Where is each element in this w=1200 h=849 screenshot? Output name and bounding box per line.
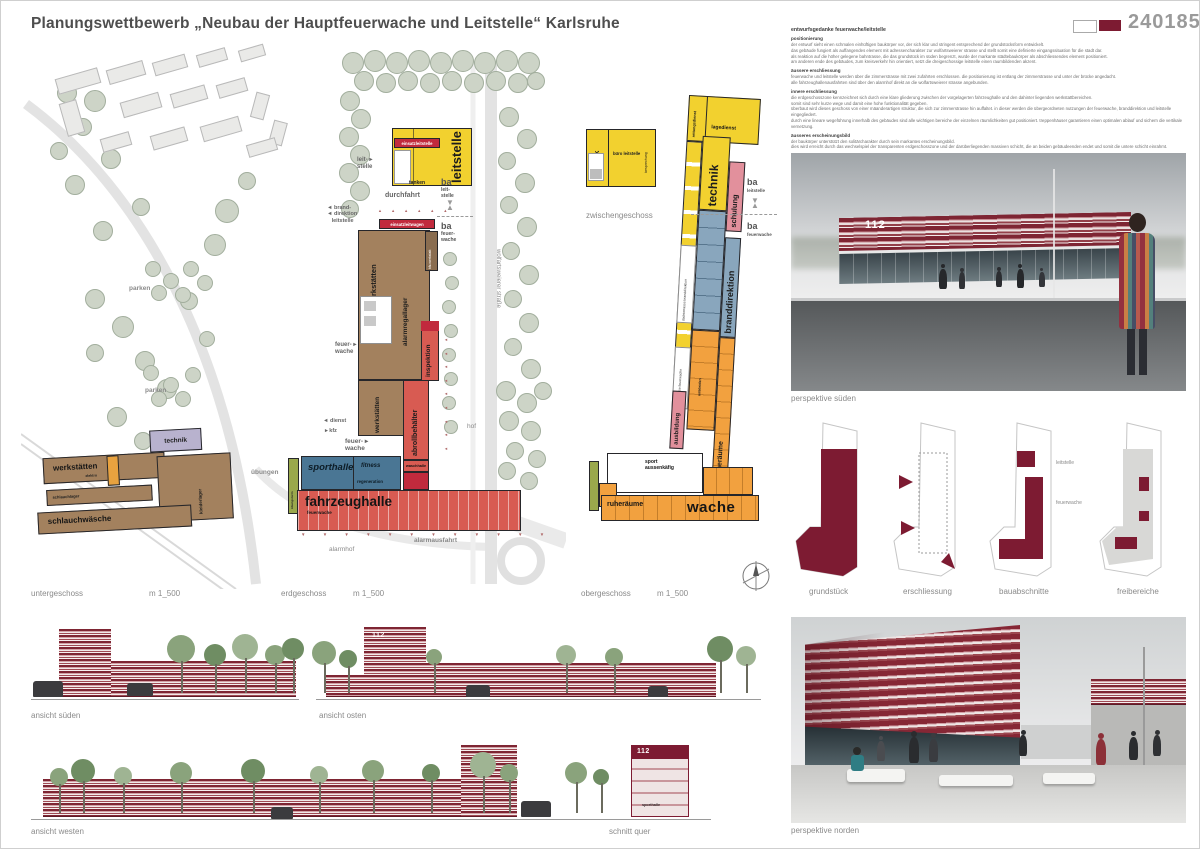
person-silhouette <box>959 272 965 289</box>
sitting-person-head <box>853 747 861 755</box>
tree <box>496 50 518 72</box>
tree-trunk <box>319 782 321 813</box>
tree-trunk <box>431 780 433 813</box>
right-building-band <box>1091 679 1186 705</box>
pedestrian-head <box>1129 213 1146 232</box>
caption-zwischengeschoss: zwischengeschoss <box>586 211 653 220</box>
tree <box>408 50 430 72</box>
tree <box>502 242 520 260</box>
tree <box>442 300 456 314</box>
room-kfz-werkstatt-label: kfz-werkstatt <box>429 250 432 270</box>
person-head <box>1098 733 1104 739</box>
caption-obergeschoss-scale: m 1_500 <box>657 589 688 598</box>
tree <box>71 759 95 783</box>
diagram-grundstueck <box>793 419 873 581</box>
person-head <box>1155 730 1160 735</box>
tree-trunk <box>123 783 125 813</box>
tree <box>362 760 384 782</box>
pedestrian-leg <box>1139 329 1147 375</box>
plan-obergeschoss-bottom: sport aussenkäfig ruheräume wache <box>585 449 763 523</box>
essay-section-innere-erschliessung: innere erschliessung die erdgeschosszone… <box>791 89 1193 130</box>
room-einsatzleitstelle: einsatzleitstelle <box>394 138 440 148</box>
tree <box>518 52 540 74</box>
section-sign-112: 112 <box>637 748 650 755</box>
og-ba-feuerwache: ba <box>747 221 758 231</box>
tree <box>204 234 226 256</box>
tree <box>151 285 167 301</box>
background-building <box>1021 725 1091 759</box>
caption-obergeschoss: obergeschoss <box>581 589 631 598</box>
elevation-ansicht-westen <box>31 743 523 820</box>
label-hof: hof <box>467 423 476 430</box>
building-sign-112: 112 <box>865 219 886 231</box>
tree <box>442 71 462 91</box>
rendering-perspektive-sueden: 112 <box>791 153 1186 391</box>
tree <box>527 72 545 90</box>
tree <box>504 338 522 356</box>
tree-trunk <box>245 658 247 693</box>
tree <box>163 273 179 289</box>
truck-silhouette <box>271 807 293 819</box>
label-kfz: ▸ kfz <box>325 428 337 434</box>
tree <box>215 199 239 223</box>
truck-silhouette <box>127 683 153 696</box>
tree <box>175 287 191 303</box>
room-alarmregallager-label: alarmregallager <box>403 298 410 346</box>
tree <box>376 73 396 93</box>
plaza-pole <box>1143 647 1145 767</box>
diagram-bauabschnitte <box>987 419 1067 581</box>
diagram-annotation-feuerwache: feuerwache <box>1056 501 1082 507</box>
tree <box>498 152 516 170</box>
tree <box>364 50 386 72</box>
tree <box>112 316 134 338</box>
plan-obergeschoss-arm: lagedienst rettungsdienst aufenthalt tec… <box>665 95 763 489</box>
tree <box>84 90 106 112</box>
tree-trunk <box>324 663 326 693</box>
section-sporthalle-label: sporthalle <box>642 803 660 807</box>
zg-besprechung-label: besprechung <box>645 152 649 173</box>
person-silhouette <box>1096 739 1106 765</box>
tree <box>496 381 516 401</box>
label-ba-feuerwache-sub: feuer- wache <box>441 232 456 244</box>
page-title: Planungswettbewerb „Neubau der Hauptfeue… <box>31 15 620 33</box>
rendering-perspektive-norden <box>791 617 1186 823</box>
tree-trunk <box>181 782 183 813</box>
label-parken-1: parken <box>129 285 150 292</box>
essay-section-title: äusseres erscheinungsbild <box>791 133 1193 138</box>
room-werkstaetten2-label: werkstätten <box>375 397 382 433</box>
elevation-ansicht-sueden <box>31 623 299 700</box>
tree <box>143 365 159 381</box>
essay-section-title: äussere erschliessung <box>791 68 1193 73</box>
truck-silhouette <box>521 801 551 817</box>
tree <box>470 752 496 778</box>
alarm-arrows-col: ◄ ◄ ◄ ◄ ◄ ◄ ◄ ◄ ◄ <box>444 333 448 455</box>
tree-trunk <box>720 660 722 693</box>
tree-trunk <box>83 781 85 813</box>
tree <box>339 163 359 183</box>
caption-bauabschnitte: bauabschnitte <box>999 587 1049 596</box>
courtyard-stair1 <box>364 301 376 311</box>
tree <box>351 109 371 129</box>
tree-trunk <box>576 782 578 813</box>
caption-grundstueck: grundstück <box>809 587 848 596</box>
tree <box>199 331 215 347</box>
alarm-arrows-up: ▲ ▲ ▲ ▲ ▲ ▲ <box>378 209 451 214</box>
person-head <box>941 264 945 268</box>
tree <box>340 91 360 111</box>
pedestrian-leg <box>1127 329 1135 375</box>
label-ba-leitstelle: ba <box>441 177 452 187</box>
room-crimson-cells <box>403 472 429 490</box>
zg-stair-fill <box>590 169 602 179</box>
label-ba-feuerwache: ba <box>441 221 452 231</box>
tree <box>241 759 265 783</box>
person-silhouette <box>1019 735 1027 756</box>
tree-trunk <box>59 784 61 813</box>
label-alarmhof: alarmhof <box>329 546 354 553</box>
tree <box>517 129 537 149</box>
person-silhouette <box>939 269 947 289</box>
tree-trunk <box>181 661 183 693</box>
caption-schnitt-quer: schnitt quer <box>609 827 650 836</box>
essay-heading: entwurfsgedanke feuerwache/leitstelle <box>791 27 1193 33</box>
caption-perspektive-sueden: perspektive süden <box>791 394 856 403</box>
person-silhouette <box>996 271 1002 287</box>
tree <box>519 313 539 333</box>
person-silhouette <box>1017 269 1024 288</box>
tree <box>452 50 474 72</box>
tree <box>50 142 68 160</box>
tree-trunk <box>293 658 295 693</box>
tree <box>85 289 105 309</box>
label-leit-stelle: leit- ▸ stelle <box>357 157 372 171</box>
competition-board: Planungswettbewerb „Neubau der Hauptfeue… <box>0 0 1200 849</box>
caption-untergeschoss-scale: m 1_500 <box>149 589 180 598</box>
room-inspektion-label: inspektion <box>426 344 433 377</box>
person-silhouette <box>1039 272 1045 287</box>
tree <box>282 638 304 660</box>
label-feuerwache-2: feuer- ▸ wache <box>345 438 368 453</box>
essay-section-positionierung: positionierung der entwurf sieht einen s… <box>791 36 1193 65</box>
person-head <box>1021 730 1026 735</box>
label-durchfahrt: durchfahrt <box>385 192 420 200</box>
tree <box>232 634 258 660</box>
plan-untergeschoss: technik werkstätten elektro kleiderlager… <box>27 420 247 541</box>
tree <box>534 382 552 400</box>
tree <box>170 762 192 784</box>
essay-section-body: die erdgeschosszone kennzeichnet sich du… <box>791 95 1193 130</box>
room-leitstelle-label: leitstelle <box>450 131 463 183</box>
tree <box>107 407 127 427</box>
ug-technik-label: technik <box>164 436 187 444</box>
tree <box>521 421 541 441</box>
label-alarmausfahrt: alarmausfahrt <box>414 537 457 544</box>
person-silhouette <box>929 739 938 762</box>
tree <box>499 411 519 431</box>
tree-trunk <box>614 664 616 693</box>
pedestrian-coat <box>1119 233 1155 329</box>
tree-trunk <box>253 781 255 813</box>
truck-silhouette <box>466 685 490 697</box>
og-ba-leitstelle: ba <box>747 177 758 187</box>
leitstelle-stair-cells <box>394 150 411 184</box>
tree <box>354 71 374 91</box>
label-dienst: ◄ dienst <box>323 418 346 424</box>
tree-trunk <box>601 783 603 813</box>
tree <box>65 175 85 195</box>
tree <box>499 107 519 127</box>
tree-trunk <box>566 663 568 693</box>
essay-section-body: der entwurf sieht einen schmalen einhüft… <box>791 42 1193 65</box>
tree <box>528 450 546 468</box>
og-ba-line <box>691 214 777 215</box>
person-silhouette <box>1153 735 1161 756</box>
room-fahrzeughalle-sub: feuerwache <box>307 510 332 515</box>
ug-technik: technik <box>149 428 202 453</box>
room-abrollbehaelter-label: abrollbehälter <box>412 410 419 456</box>
tree <box>443 252 457 266</box>
tree <box>445 276 459 290</box>
tree <box>175 391 191 407</box>
tree <box>707 636 733 662</box>
tree-trunk <box>483 776 485 813</box>
diagram-erschliessung <box>891 419 971 581</box>
tree-trunk <box>509 780 511 813</box>
plaza-bench <box>939 775 1013 786</box>
tree <box>519 265 539 285</box>
label-street: wolfartsweierer straße <box>495 249 501 308</box>
tree <box>145 261 161 277</box>
zg-buero-label: büro leitstelle <box>613 151 640 156</box>
caption-untergeschoss: untergeschoss <box>31 589 83 598</box>
section-schnitt-quer: 112 sporthalle <box>516 743 711 820</box>
room-inspektion-cap <box>421 321 439 331</box>
caption-perspektive-norden: perspektive norden <box>791 826 859 835</box>
caption-freibereiche: freibereiche <box>1117 587 1159 596</box>
room-einsatzleitwagen: einsatzleitwagen <box>379 219 435 229</box>
tree-trunk <box>275 663 277 693</box>
ug-orange-cell <box>106 455 120 486</box>
tree <box>517 217 537 237</box>
essay-section-erscheinungsbild: äusseres erscheinungsbild der baukörper … <box>791 133 1193 151</box>
compass-icon <box>739 559 773 593</box>
caption-ansicht-westen: ansicht westen <box>31 827 84 836</box>
tree <box>520 472 538 490</box>
caption-ansicht-sueden: ansicht süden <box>31 711 80 720</box>
tree <box>517 393 537 413</box>
room-regeneration-label: regeneration <box>357 479 383 484</box>
room-waschhalle-label: waschhalle <box>406 464 426 468</box>
essay-section-title: positionierung <box>791 36 1193 41</box>
tree <box>556 645 576 665</box>
tree <box>420 73 440 93</box>
tree-trunk <box>348 666 350 693</box>
tree <box>86 344 104 362</box>
label-uebungen: übungen <box>251 469 278 476</box>
label-tanken: tanken <box>409 181 425 187</box>
tree <box>515 173 535 193</box>
label-parken-2: parken <box>145 387 166 394</box>
tree-trunk <box>746 664 748 693</box>
label-feuerwache-1: feuer- ▸ wache <box>335 342 356 356</box>
og-ba-feuerwache-sub: feuerwache <box>747 232 772 237</box>
truck-silhouette <box>33 681 63 697</box>
ba-phase-line <box>437 216 473 217</box>
elevation-ansicht-osten: 112 <box>316 623 761 700</box>
og-sport-label: sport aussenkäfig <box>645 459 674 471</box>
tree <box>498 462 516 480</box>
room-sporthalle-label: sporthalle <box>308 462 353 473</box>
building-glass-band <box>839 248 1131 284</box>
label-branddirektion-leitstelle: ◄ brand- ◄ direktion leitstelle <box>327 205 357 224</box>
courtyard-stair2 <box>364 316 376 326</box>
essay-block: entwurfsgedanke feuerwache/leitstelle po… <box>791 27 1193 150</box>
og-technik-label: technik <box>706 164 720 207</box>
room-uebungsturm-label: übungsturm <box>291 492 294 510</box>
street-pole <box>1053 169 1055 299</box>
diagram-freibereiche <box>1097 419 1177 581</box>
tree <box>464 73 484 93</box>
leitstelle-grid-line <box>413 128 414 186</box>
room-waschhalle: waschhalle <box>403 460 429 472</box>
caption-ansicht-osten: ansicht osten <box>319 711 366 720</box>
tree <box>132 198 150 216</box>
og-orange-cells-right <box>703 467 753 495</box>
plaza-bench <box>1043 773 1095 784</box>
zg-divider <box>608 129 609 187</box>
sitting-person <box>851 755 864 771</box>
tower <box>59 629 111 697</box>
tree <box>736 646 756 666</box>
tree <box>500 196 518 214</box>
tree <box>506 442 524 460</box>
tree <box>167 635 195 663</box>
room-fitness-label: fitness <box>361 463 380 469</box>
room-fahrzeughalle-label: fahrzeughalle <box>305 494 392 509</box>
room-einsatzleitwagen-label: einsatzleitwagen <box>390 222 423 227</box>
tree <box>204 644 226 666</box>
tree <box>238 172 256 190</box>
tree <box>183 261 199 277</box>
og-wache-label: wache <box>687 499 735 516</box>
building-wing <box>326 675 364 697</box>
tree <box>339 127 359 147</box>
tree-trunk <box>373 780 375 813</box>
caption-erschliessung: erschliessung <box>903 587 952 596</box>
og-ruheraeume-label: ruheräume <box>607 501 643 508</box>
tree <box>398 71 418 91</box>
og-ba-leitstelle-sub: leitstelle <box>747 188 765 193</box>
tower-sign-112: 112 <box>372 632 385 639</box>
person-head <box>960 268 964 272</box>
person-silhouette <box>877 741 885 761</box>
tree <box>185 367 201 383</box>
tree <box>504 290 522 308</box>
tree <box>312 641 336 665</box>
truck-silhouette <box>648 686 668 697</box>
og-schulung-label: schulung <box>730 194 739 228</box>
person-head <box>911 731 917 737</box>
essay-section-title: innere erschliessung <box>791 89 1193 94</box>
ug-elektro-label: elektro <box>85 473 97 478</box>
person-silhouette <box>1129 737 1138 760</box>
essay-section-body: feuerwache und leitstelle werden über di… <box>791 74 1193 86</box>
essay-section-body: der baukörper unterstützt den solitärcha… <box>791 139 1193 151</box>
tree <box>565 762 587 784</box>
tree <box>350 181 370 201</box>
diagram-annotation-leitstelle: leitstelle <box>1056 461 1074 467</box>
person-silhouette <box>909 737 919 763</box>
caption-erdgeschoss: erdgeschoss <box>281 589 326 598</box>
tree <box>197 275 213 291</box>
room-einsatzleitstelle-label: einsatzleitstelle <box>402 141 433 146</box>
tree <box>93 221 113 241</box>
tree-trunk <box>215 664 217 693</box>
person-head <box>879 736 883 740</box>
tree-trunk <box>434 663 436 693</box>
tree <box>521 359 541 379</box>
caption-erdgeschoss-scale: m 1_500 <box>353 589 384 598</box>
tree <box>508 73 528 93</box>
og-green-sliver <box>589 461 599 511</box>
essay-section-aeussere-erschliessung: äussere erschliessung feuerwache und lei… <box>791 68 1193 86</box>
og-ba-marker-icon: ▼ ▲ <box>751 199 759 209</box>
tree <box>486 71 506 91</box>
